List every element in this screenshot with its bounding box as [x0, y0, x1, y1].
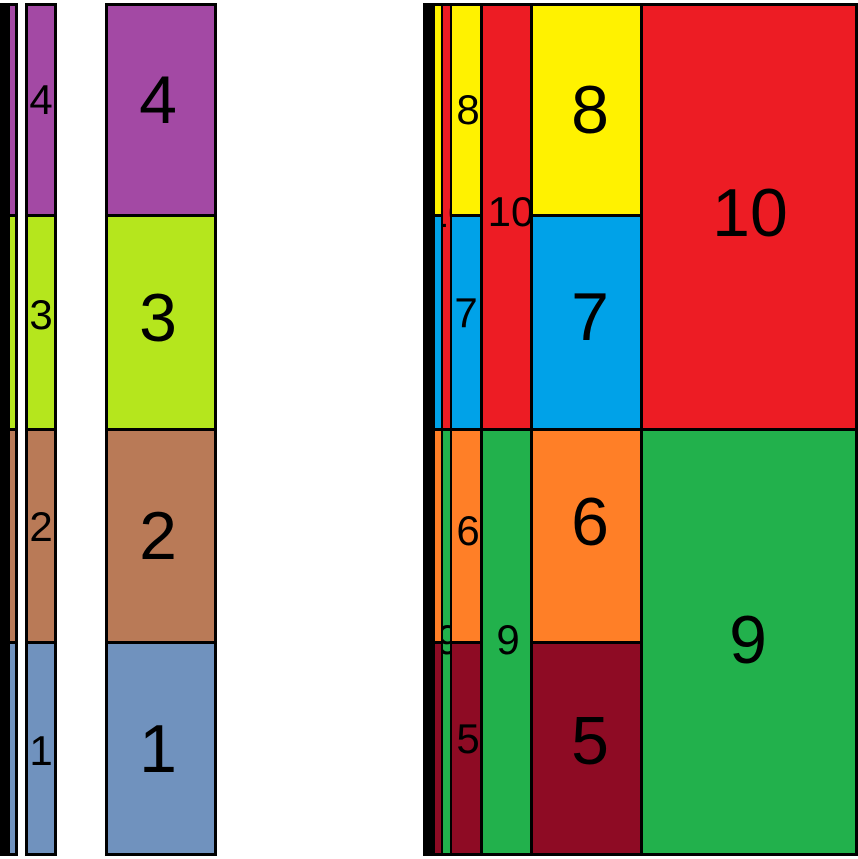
stacked-bar-width-2-box-3 — [10, 217, 15, 428]
treemap-width-2-box-10: 10 — [443, 6, 450, 428]
treemap-width-2-label-9: 9 — [443, 619, 450, 661]
stacked-bar-width-1 — [0, 3, 7, 856]
stacked-bar-width-4-label-2: 2 — [139, 502, 177, 570]
treemap-width-3-box-9: 9 — [483, 431, 530, 853]
treemap-width-3-label-9: 9 — [496, 619, 519, 661]
stacked-bar-width-4-box-2: 2 — [108, 431, 214, 641]
treemap-width-4-label-9: 9 — [729, 606, 767, 674]
treemap-width-2-box-8 — [435, 6, 441, 214]
stacked-bar-width-3-label-3: 3 — [29, 294, 52, 336]
treemap-width-3-label-6: 6 — [456, 510, 479, 552]
treemap-width-2-box-7 — [435, 217, 441, 428]
stacked-bar-width-2-box-4 — [10, 6, 15, 214]
treemap-width-4-label-8: 8 — [571, 76, 609, 144]
treemap-width-1 — [423, 3, 435, 856]
stacked-bar-width-4-label-3: 3 — [139, 284, 177, 352]
treemap-width-3-label-5: 5 — [456, 718, 479, 760]
stacked-bar-width-2-box-1 — [10, 644, 15, 853]
figure-canvas: 4321432187106598710659109 — [0, 0, 858, 859]
treemap-width-3-label-8: 8 — [456, 89, 479, 131]
stacked-bar-width-3-box-4: 4 — [28, 6, 54, 214]
stacked-bar-width-3-label-1: 1 — [29, 730, 52, 772]
stacked-bar-width-4-label-4: 4 — [139, 66, 177, 134]
stacked-bar-width-4-box-3: 3 — [108, 217, 214, 428]
treemap-width-3-label-10: 10 — [488, 191, 530, 233]
treemap-width-2-box-9: 9 — [443, 431, 450, 853]
stacked-bar-width-3-box-1: 1 — [28, 644, 54, 853]
stacked-bar-width-3-label-2: 2 — [29, 506, 52, 548]
stacked-bar-width-4: 4321 — [105, 3, 217, 856]
treemap-width-4-box-9: 9 — [643, 431, 855, 853]
stacked-bar-width-3-label-4: 4 — [29, 79, 52, 121]
treemap-width-4-label-10: 10 — [712, 179, 788, 247]
treemap-width-4-label-5: 5 — [571, 707, 609, 775]
treemap-width-2-box-6 — [435, 431, 441, 641]
stacked-bar-width-4-box-4: 4 — [108, 6, 214, 214]
stacked-bar-width-3-box-2: 2 — [28, 431, 54, 641]
treemap-width-4-label-6: 6 — [571, 488, 609, 556]
treemap-width-2: 109 — [432, 3, 452, 856]
stacked-bar-width-4-label-1: 1 — [139, 715, 177, 783]
treemap-width-4-box-10: 10 — [643, 6, 855, 428]
stacked-bar-width-3: 4321 — [25, 3, 57, 856]
treemap-width-4-label-7: 7 — [571, 283, 609, 351]
stacked-bar-width-3-box-3: 3 — [28, 217, 54, 428]
stacked-bar-width-2 — [7, 3, 18, 856]
treemap-width-3-box-10: 10 — [483, 6, 530, 428]
stacked-bar-width-4-box-1: 1 — [108, 644, 214, 853]
treemap-width-2-box-5 — [435, 644, 441, 853]
stacked-bar-width-2-box-2 — [10, 431, 15, 641]
treemap-width-3-label-7: 7 — [454, 292, 477, 334]
treemap-width-2-label-10: 10 — [443, 192, 450, 234]
